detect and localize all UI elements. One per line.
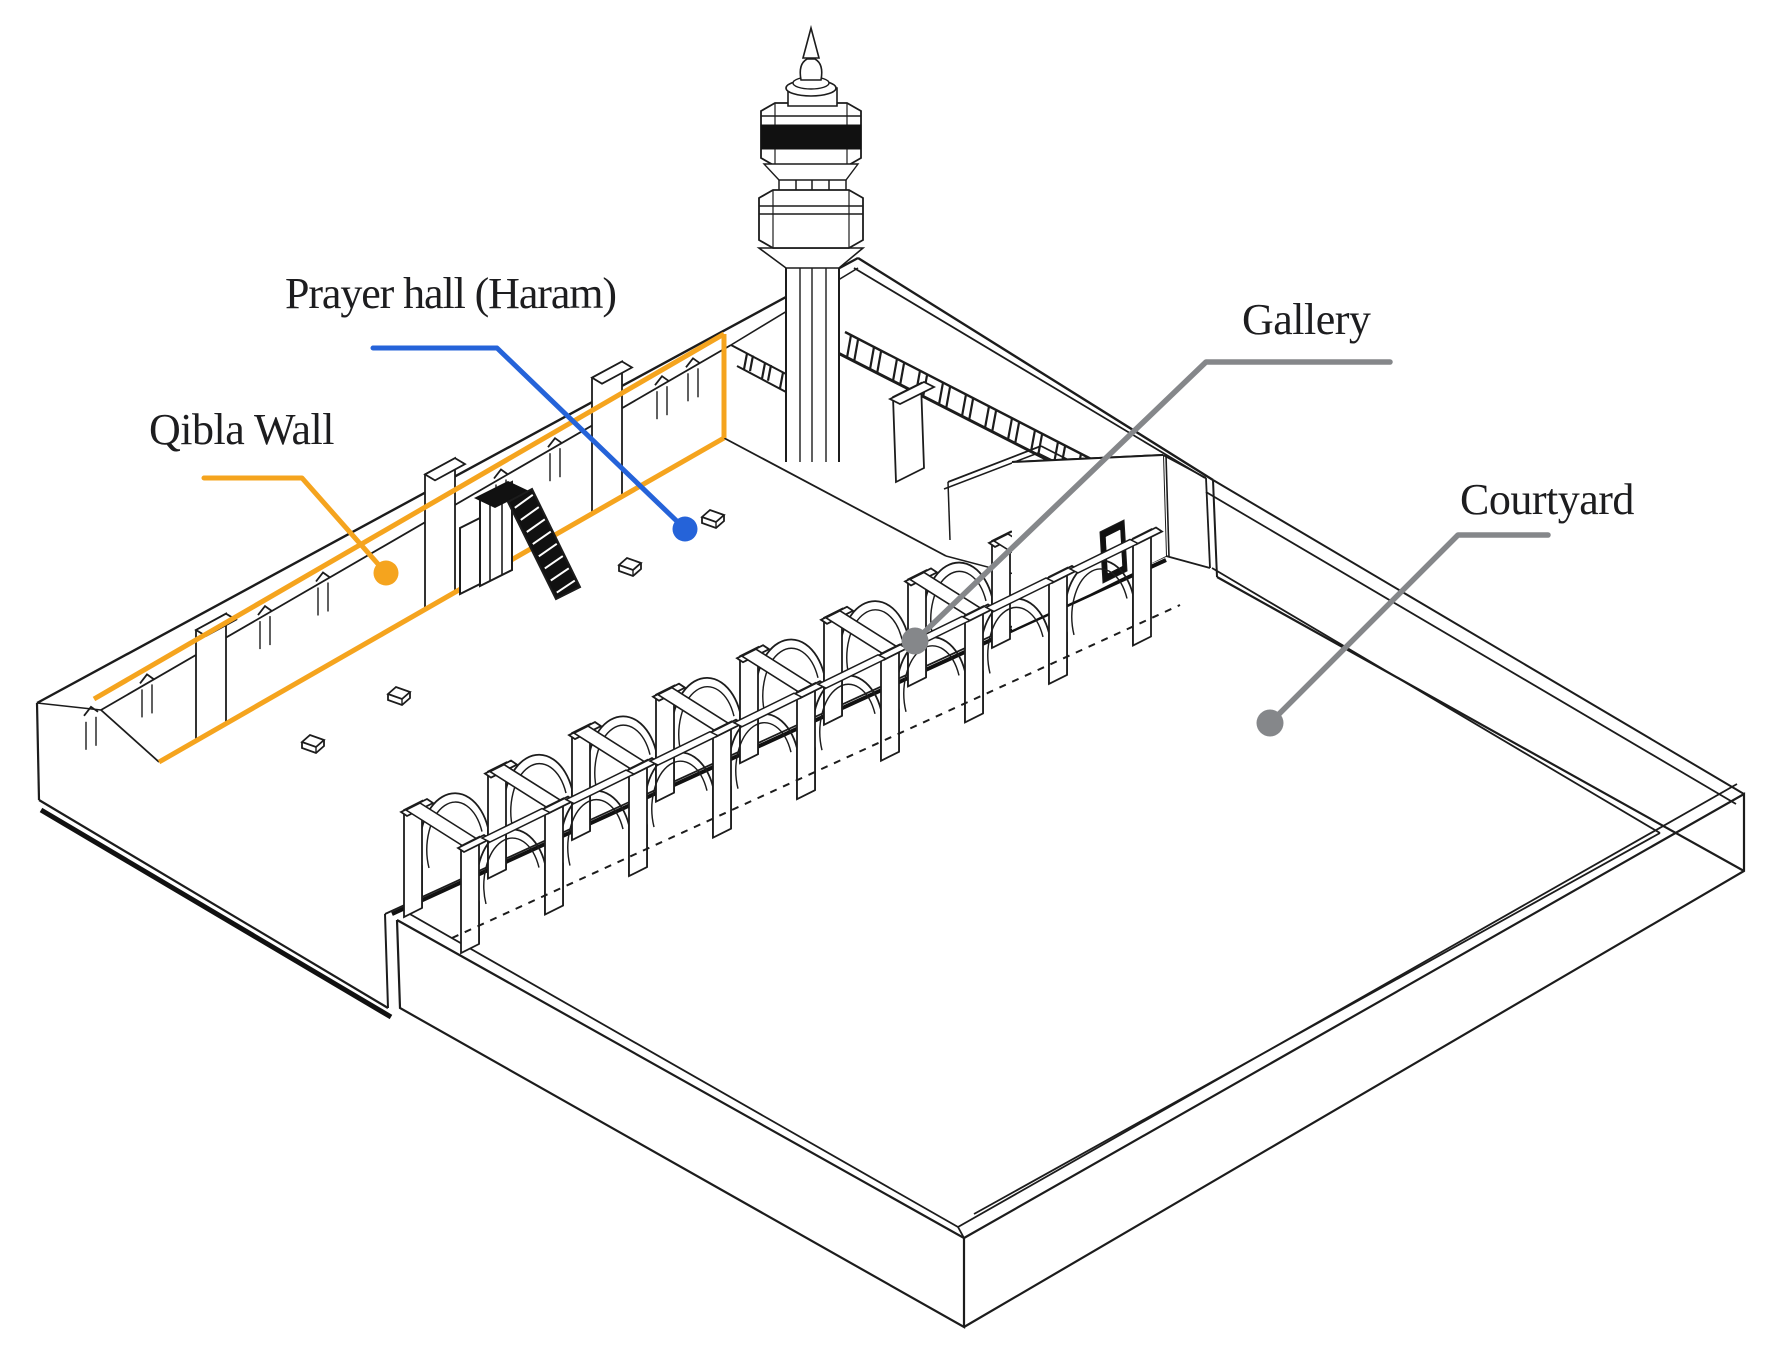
svg-text:Qibla Wall: Qibla Wall (149, 405, 334, 454)
svg-text:Prayer hall (Haram): Prayer hall (Haram) (285, 269, 616, 318)
svg-text:Courtyard: Courtyard (1460, 475, 1634, 524)
svg-text:Gallery: Gallery (1242, 295, 1371, 344)
